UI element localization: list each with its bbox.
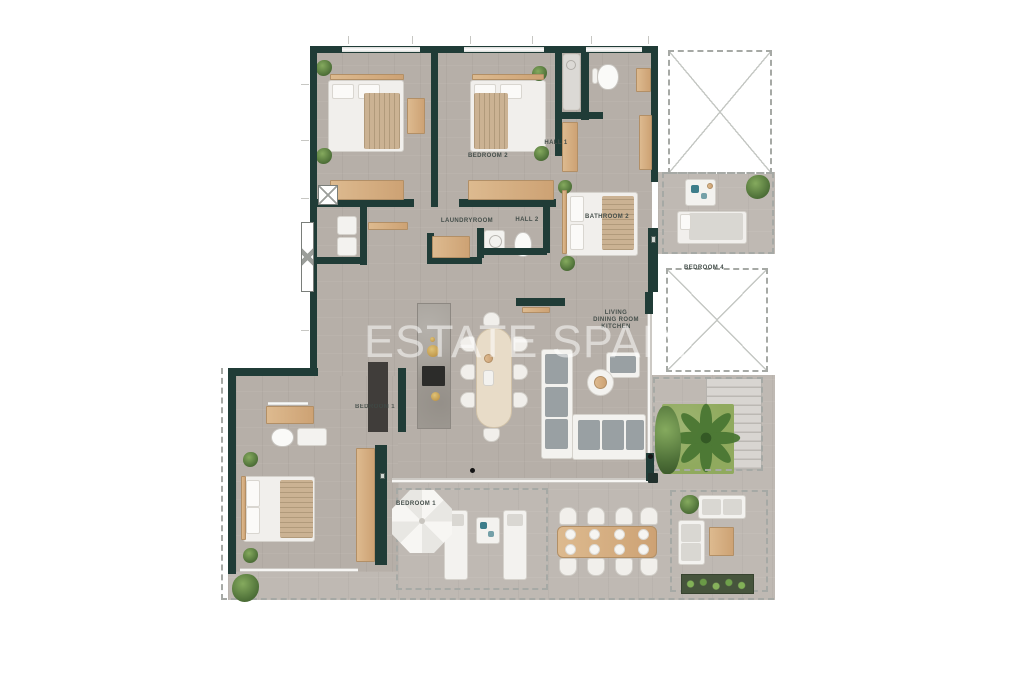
sofa-cushion xyxy=(681,524,701,542)
door-marker xyxy=(470,468,475,473)
wall-segment xyxy=(516,298,565,306)
outdoor-dining-table xyxy=(557,526,657,558)
plate-icon xyxy=(614,544,625,555)
wall-segment xyxy=(581,52,589,120)
headboard xyxy=(241,476,246,540)
sofa-cushion xyxy=(602,420,624,450)
pan-icon xyxy=(431,392,440,401)
dimension-tick xyxy=(591,36,592,44)
hall-cabinet xyxy=(639,115,652,170)
sofa-cushion xyxy=(578,420,600,450)
place-settings xyxy=(558,527,656,557)
dimension-tick xyxy=(301,330,309,331)
shaft-hatch xyxy=(301,222,314,292)
plate-icon xyxy=(565,529,576,540)
coffee-table-decor xyxy=(594,376,607,389)
switch-icon xyxy=(651,236,656,243)
table-decor xyxy=(488,531,494,537)
plate-icon xyxy=(589,529,600,540)
bathroom-vanity xyxy=(266,406,314,424)
room-label-bedroom1-terrace: BEDROOM 1 xyxy=(392,500,440,509)
room-label-bedroom2: BEDROOM 2 xyxy=(458,152,518,161)
room-label-laundryroom: LAUNDRYROOM xyxy=(432,217,502,226)
cooktop xyxy=(422,366,445,386)
shower-drain-icon xyxy=(566,60,576,70)
boundary-dash-bottom xyxy=(221,598,774,602)
shelf xyxy=(368,222,408,230)
room-label-hall2: HALL 2 xyxy=(505,216,549,225)
wardrobe xyxy=(356,448,375,562)
washing-machine xyxy=(337,237,357,256)
chair xyxy=(460,392,475,408)
planter-box xyxy=(681,574,754,594)
room-label-hall1: HALL 1 xyxy=(538,139,574,148)
wall-segment xyxy=(375,445,387,565)
room-label-bathroom2: BATHROOM 2 xyxy=(576,213,638,222)
chair xyxy=(587,507,605,525)
sofa-cushion xyxy=(626,420,644,450)
watermark: ESTATE SPAIN xyxy=(364,316,664,368)
desk-decor xyxy=(691,185,699,193)
wall-segment xyxy=(431,52,438,207)
chair xyxy=(640,507,658,525)
plate-icon xyxy=(565,544,576,555)
chair xyxy=(559,507,577,525)
dimension-tick xyxy=(348,36,349,44)
dimension-tick xyxy=(470,36,471,44)
blanket xyxy=(474,93,508,149)
wardrobe-closet xyxy=(368,362,388,432)
window xyxy=(586,47,642,52)
desk-decor xyxy=(701,193,707,199)
desk xyxy=(407,98,425,134)
wall-segment xyxy=(228,368,236,574)
plate-icon xyxy=(589,544,600,555)
pillow xyxy=(680,214,691,230)
blanket xyxy=(364,93,400,149)
blanket xyxy=(280,480,313,538)
wardrobe xyxy=(468,180,554,200)
sliding-glass-door xyxy=(392,478,650,483)
dimension-tick xyxy=(301,198,309,199)
bathtub xyxy=(297,428,327,446)
toilet-icon xyxy=(271,428,294,447)
tv-console xyxy=(522,307,550,313)
chair xyxy=(587,558,605,576)
sofa-cushion xyxy=(545,419,568,449)
washer-drum-icon xyxy=(489,235,502,248)
boundary-dash-left xyxy=(221,368,225,600)
wall-segment xyxy=(316,257,367,264)
void-cross-top-outline xyxy=(668,50,772,174)
room-label-bedroom1-wardrobe: BEDROOM 1 xyxy=(352,403,398,412)
pillow xyxy=(246,480,260,507)
plate-icon xyxy=(638,544,649,555)
pillow xyxy=(570,224,584,250)
mirror xyxy=(268,402,308,405)
room-label-bathroom3-text: BATHROOM 3 xyxy=(657,101,691,102)
wall-segment xyxy=(483,248,547,255)
dimension-tick xyxy=(532,36,533,44)
table-decor xyxy=(480,522,487,529)
headboard xyxy=(562,190,567,254)
dimension-tick xyxy=(301,140,309,141)
wall-segment xyxy=(427,257,482,264)
desk-decor xyxy=(707,183,713,189)
chair xyxy=(559,558,577,576)
pillow xyxy=(332,84,354,99)
chair xyxy=(615,558,633,576)
wall-segment xyxy=(543,207,550,253)
sofa-cushion xyxy=(723,499,742,515)
wall-segment xyxy=(228,368,318,376)
chair xyxy=(615,507,633,525)
window xyxy=(342,47,420,52)
shaft-hatch xyxy=(318,185,338,205)
blanket xyxy=(602,196,634,250)
bathroom-vanity xyxy=(636,68,651,92)
wall-segment xyxy=(459,199,556,207)
dimension-tick xyxy=(412,36,413,44)
sofa-cushion xyxy=(681,543,701,561)
table-decor xyxy=(483,370,494,386)
entrance-icon xyxy=(648,473,658,483)
parasol-pole xyxy=(419,518,425,524)
toilet-icon xyxy=(597,64,619,90)
lounger-pillow xyxy=(507,514,523,526)
laundry-counter xyxy=(432,236,470,258)
floor-plan-canvas: BEDROOM 2 BATHROOM 3 HALL 1 LAUNDRYROOM … xyxy=(0,0,1024,689)
plate-icon xyxy=(614,529,625,540)
headboard xyxy=(330,74,404,80)
bedroom1-window xyxy=(240,568,358,572)
dimension-tick xyxy=(648,36,649,44)
sofa-cushion xyxy=(545,387,568,417)
wardrobe xyxy=(330,180,404,200)
door-marker xyxy=(648,454,653,459)
chair xyxy=(640,558,658,576)
washing-machine xyxy=(337,216,357,235)
dimension-tick xyxy=(301,84,309,85)
room-label-bathroom3: BATHROOM 3 xyxy=(657,93,691,102)
window xyxy=(464,47,544,52)
pillow xyxy=(246,507,260,534)
outdoor-coffee-table xyxy=(709,527,734,556)
headboard xyxy=(472,74,544,80)
switch-icon xyxy=(380,473,385,479)
wall-segment xyxy=(310,46,317,375)
wall-segment xyxy=(651,46,658,182)
sofa-cushion xyxy=(702,499,721,515)
plate-icon xyxy=(638,529,649,540)
blanket xyxy=(689,213,743,240)
room-label-bedroom4: BEDROOM 4 xyxy=(672,264,736,273)
wall-segment xyxy=(398,368,406,432)
